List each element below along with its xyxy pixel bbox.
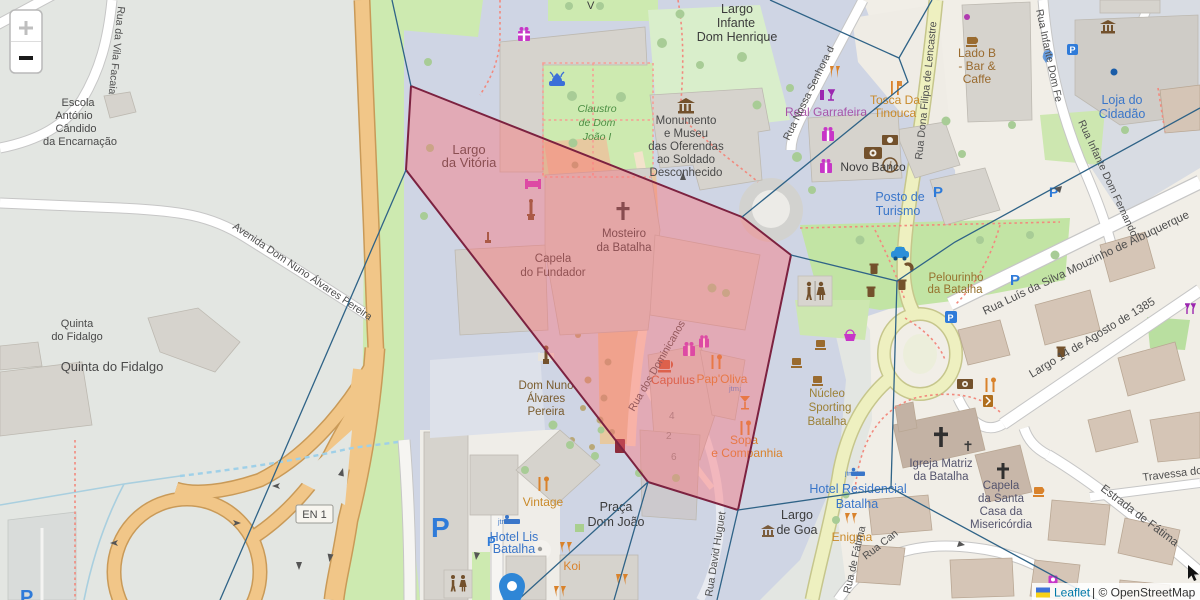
svg-text:da Encarnação: da Encarnação <box>43 136 117 148</box>
svg-text:da Santa: da Santa <box>978 493 1025 505</box>
svg-text:Lado B: Lado B <box>958 46 996 60</box>
svg-text:ao Soldado: ao Soldado <box>657 154 715 166</box>
svg-text:Tosca Da: Tosca Da <box>870 93 920 107</box>
svg-text:jtm: jtm <box>844 471 854 478</box>
svg-text:de Goa: de Goa <box>776 523 817 537</box>
svg-text:Casa da: Casa da <box>980 506 1023 518</box>
svg-text:da Batalha: da Batalha <box>928 284 984 296</box>
svg-text:Posto de: Posto de <box>875 190 924 204</box>
svg-text:Quinta do Fidalgo: Quinta do Fidalgo <box>61 359 164 374</box>
svg-text:Batalha: Batalha <box>807 416 847 428</box>
svg-text:Largo: Largo <box>721 2 753 16</box>
svg-text:P: P <box>20 587 33 600</box>
svg-text:João I: João I <box>582 131 612 143</box>
svg-text:jtm: jtm <box>497 519 508 526</box>
svg-text:Sporting: Sporting <box>809 402 852 414</box>
svg-text:Batalha: Batalha <box>493 542 535 556</box>
svg-text:António: António <box>55 110 92 122</box>
svg-text:Quinta: Quinta <box>61 318 94 330</box>
svg-text:P: P <box>431 512 450 543</box>
svg-text:Leaflet: Leaflet <box>1054 586 1091 600</box>
svg-text:Caffe: Caffe <box>963 72 992 86</box>
svg-text:- Bar &: - Bar & <box>958 59 995 73</box>
svg-text:P: P <box>933 184 943 201</box>
svg-text:Largo: Largo <box>781 508 813 522</box>
svg-text:| © OpenStreetMap: | © OpenStreetMap <box>1092 586 1196 600</box>
svg-text:Tinouca: Tinouca <box>874 106 917 120</box>
svg-text:Cândido: Cândido <box>56 123 97 135</box>
svg-text:Vintage: Vintage <box>523 495 564 509</box>
svg-text:Desconhecido: Desconhecido <box>650 167 723 179</box>
svg-text:Álvares: Álvares <box>527 392 566 405</box>
svg-text:Escola: Escola <box>61 97 95 109</box>
svg-text:Dom Nuno: Dom Nuno <box>519 380 574 392</box>
svg-text:Pereira: Pereira <box>527 406 565 418</box>
svg-text:e Museu: e Museu <box>664 128 708 140</box>
svg-text:EN 1: EN 1 <box>302 509 326 521</box>
svg-text:Igreja Matriz: Igreja Matriz <box>909 458 973 470</box>
svg-text:P: P <box>948 313 954 323</box>
svg-text:Pelourinho: Pelourinho <box>929 272 984 284</box>
svg-text:Núcleo: Núcleo <box>809 388 845 400</box>
svg-text:do Fidalgo: do Fidalgo <box>51 331 102 343</box>
svg-text:de Dom: de Dom <box>579 117 616 129</box>
svg-text:Misericórdia: Misericórdia <box>970 519 1033 531</box>
svg-text:Claustro: Claustro <box>577 103 616 115</box>
svg-text:Batalha: Batalha <box>836 497 878 511</box>
svg-text:P: P <box>1010 272 1020 289</box>
svg-text:Infante: Infante <box>717 16 755 30</box>
svg-text:Dom Henrique: Dom Henrique <box>697 30 778 44</box>
svg-text:Turismo: Turismo <box>876 204 921 218</box>
svg-text:Koi: Koi <box>563 559 580 573</box>
svg-text:Monumento: Monumento <box>656 115 717 127</box>
svg-text:V: V <box>587 0 595 12</box>
svg-text:Loja do: Loja do <box>1101 93 1142 107</box>
svg-text:P: P <box>1070 45 1076 55</box>
svg-text:Capela: Capela <box>983 480 1020 492</box>
svg-text:da Batalha: da Batalha <box>914 471 970 483</box>
svg-text:das Oferendas: das Oferendas <box>648 141 724 153</box>
svg-text:Novo Banco: Novo Banco <box>840 160 906 174</box>
svg-text:Cidadão: Cidadão <box>1099 107 1146 121</box>
